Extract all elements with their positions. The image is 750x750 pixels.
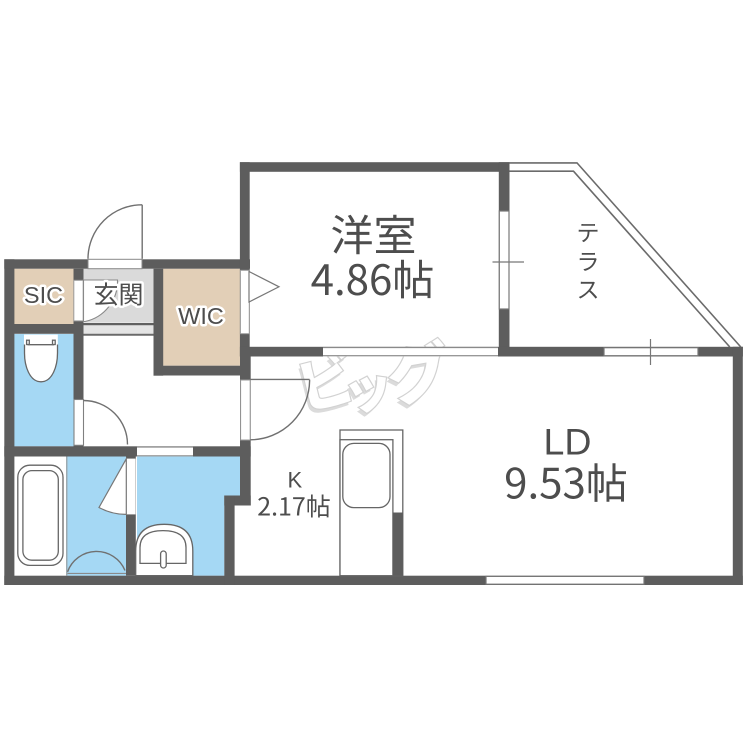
svg-text:LD: LD [544,421,592,463]
svg-text:K: K [287,468,302,493]
svg-text:WIC: WIC [178,303,224,329]
svg-text:SIC: SIC [24,282,63,308]
